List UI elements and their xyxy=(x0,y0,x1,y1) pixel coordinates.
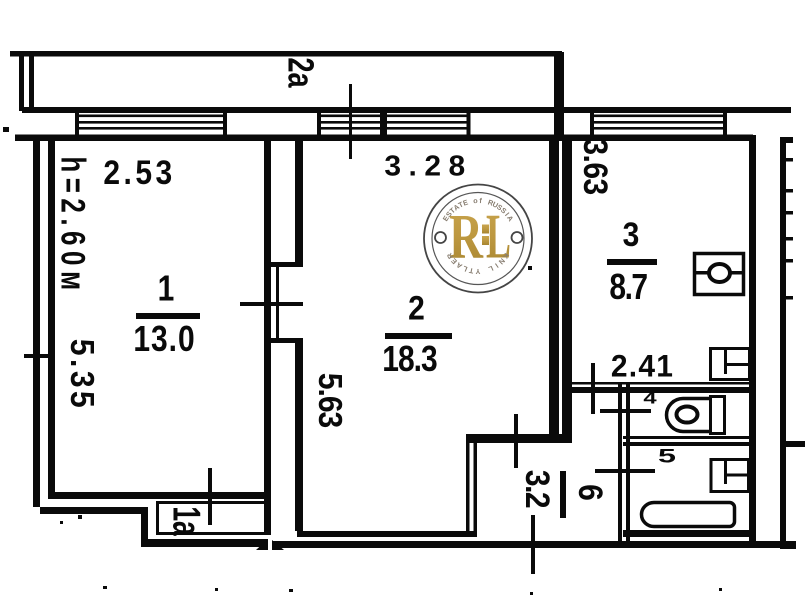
svg-text:3: 3 xyxy=(623,215,640,253)
svg-text:1: 1 xyxy=(158,269,175,309)
svg-text:Y: Y xyxy=(475,267,480,276)
svg-text:5.35: 5.35 xyxy=(64,339,102,411)
svg-text:8.7: 8.7 xyxy=(609,267,646,307)
svg-text:3.63: 3.63 xyxy=(576,138,614,194)
svg-text:2a: 2a xyxy=(281,57,321,88)
svg-text:4: 4 xyxy=(643,389,657,408)
svg-text:5: 5 xyxy=(658,445,676,467)
svg-text:3.2: 3.2 xyxy=(518,470,556,508)
svg-text:h=2.60м: h=2.60м xyxy=(54,156,91,295)
svg-text:2: 2 xyxy=(408,289,425,327)
svg-text:1a: 1a xyxy=(164,506,207,536)
svg-text:6: 6 xyxy=(571,484,609,501)
svg-text:2.53: 2.53 xyxy=(103,153,175,191)
svg-text:3.28: 3.28 xyxy=(384,151,472,182)
svg-text:18.3: 18.3 xyxy=(382,339,437,379)
svg-text:2.41: 2.41 xyxy=(611,348,674,384)
svg-text:13.0: 13.0 xyxy=(133,319,195,359)
svg-text:5.63: 5.63 xyxy=(312,373,350,428)
